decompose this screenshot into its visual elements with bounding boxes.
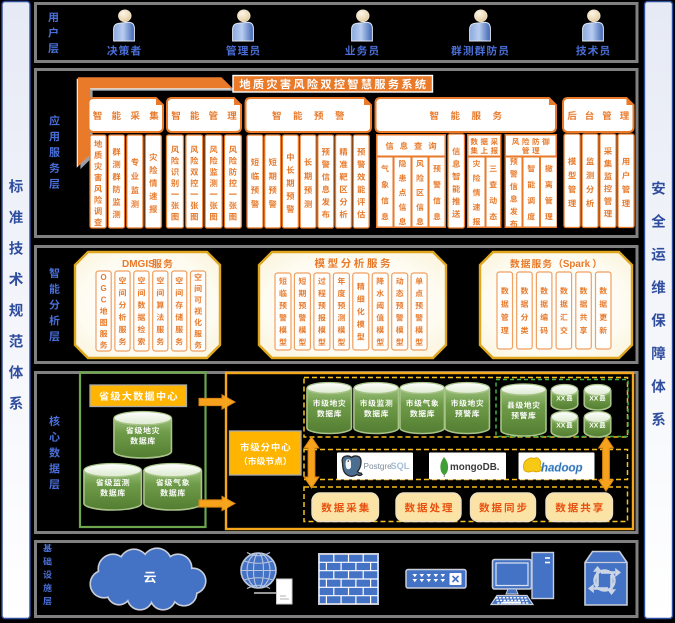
svg-text:XX: XX <box>556 422 566 429</box>
svg-text:SQL: SQL <box>391 461 410 471</box>
svg-text:O: O <box>101 273 107 282</box>
svg-text:hadoop: hadoop <box>541 463 583 475</box>
svg-text:Spark: Spark <box>563 259 591 270</box>
svg-text:mongoDB.: mongoDB. <box>450 462 500 473</box>
svg-text:XX: XX <box>589 395 599 402</box>
svg-text:C: C <box>101 296 107 305</box>
svg-text:G: G <box>101 284 107 293</box>
svg-text:XX: XX <box>556 395 566 402</box>
svg-text:DMGIS: DMGIS <box>122 259 155 270</box>
svg-text:Postgre: Postgre <box>364 462 393 471</box>
svg-text:XX: XX <box>589 422 599 429</box>
